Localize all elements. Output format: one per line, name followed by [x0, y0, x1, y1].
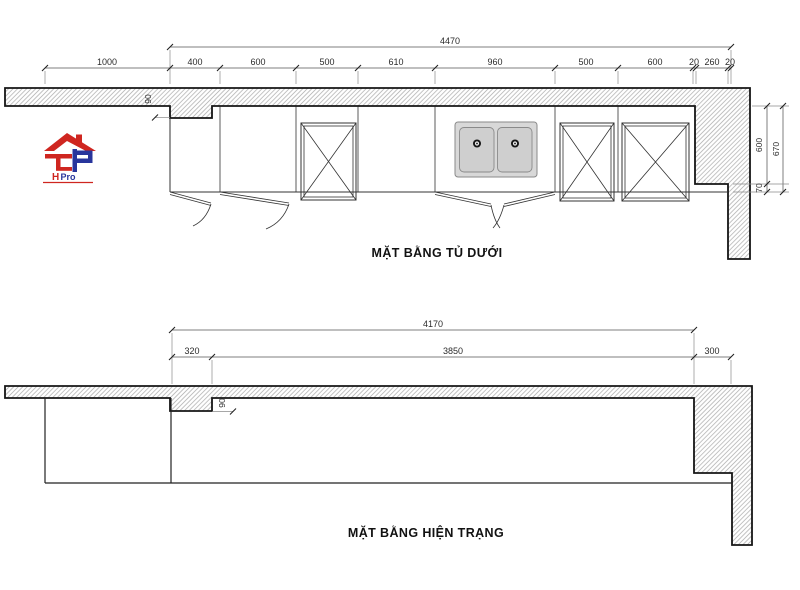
bottom-plan-dimensions: 4170 320 3850 300 90 [169, 319, 734, 415]
dim-seg: 320 [184, 346, 199, 356]
drawing-canvas: 4470 1000 400 600 500 610 960 500 600 20… [0, 0, 800, 590]
hpro-logo: H Pro [43, 133, 96, 183]
logo-text-h: H [52, 172, 59, 183]
logo-text-pro: Pro [61, 172, 77, 182]
dim-seg: 300 [704, 346, 719, 356]
dim-seg: 20 [689, 57, 699, 67]
appliance-box-3 [622, 123, 689, 201]
dim-seg: 3850 [443, 346, 463, 356]
door-swings [170, 192, 555, 229]
dim-seg: 600 [250, 57, 265, 67]
existing-room-outline [45, 398, 732, 483]
dim-right-670: 670 [771, 142, 781, 156]
dim-seg: 600 [647, 57, 662, 67]
dim-seg: 500 [319, 57, 334, 67]
top-plan-title: MẶT BẰNG TỦ DƯỚI [372, 245, 503, 260]
dim-right-600: 600 [754, 138, 764, 152]
wall-outline [5, 88, 750, 259]
dim-seg: 610 [388, 57, 403, 67]
dim-step-bottom: 90 [217, 398, 227, 408]
dim-seg: 400 [187, 57, 202, 67]
dim-seg: 20 [725, 57, 735, 67]
dim-total-bottom: 4170 [423, 319, 443, 329]
dim-right-70: 70 [754, 183, 764, 193]
appliance-box-1 [301, 123, 356, 200]
dim-seg: 260 [704, 57, 719, 67]
sink-drain-left [473, 140, 481, 148]
top-plan: 4470 1000 400 600 500 610 960 500 600 20… [5, 36, 789, 260]
top-plan-walls [5, 88, 750, 259]
dim-seg: 960 [487, 57, 502, 67]
bottom-plan-title: MẶT BẰNG HIỆN TRẠNG [348, 525, 504, 540]
sink-drain-right [511, 140, 519, 148]
top-plan-dimensions: 4470 1000 400 600 500 610 960 500 600 20… [42, 36, 789, 195]
dim-seg: 500 [578, 57, 593, 67]
kitchen-plan-drawing: 4470 1000 400 600 500 610 960 500 600 20… [0, 0, 800, 590]
hpro-house-icon [44, 133, 96, 172]
dim-total-top: 4470 [440, 36, 460, 46]
bottom-plan: 4170 320 3850 300 90 MẶT BẰNG HIỆN TRẠNG [5, 319, 752, 545]
dim-seg: 1000 [97, 57, 117, 67]
dim-step-top: 90 [143, 94, 153, 104]
double-sink [455, 122, 537, 177]
wall-outline-bottom [5, 386, 752, 545]
bottom-plan-walls [5, 386, 752, 545]
appliance-box-2 [560, 123, 614, 201]
